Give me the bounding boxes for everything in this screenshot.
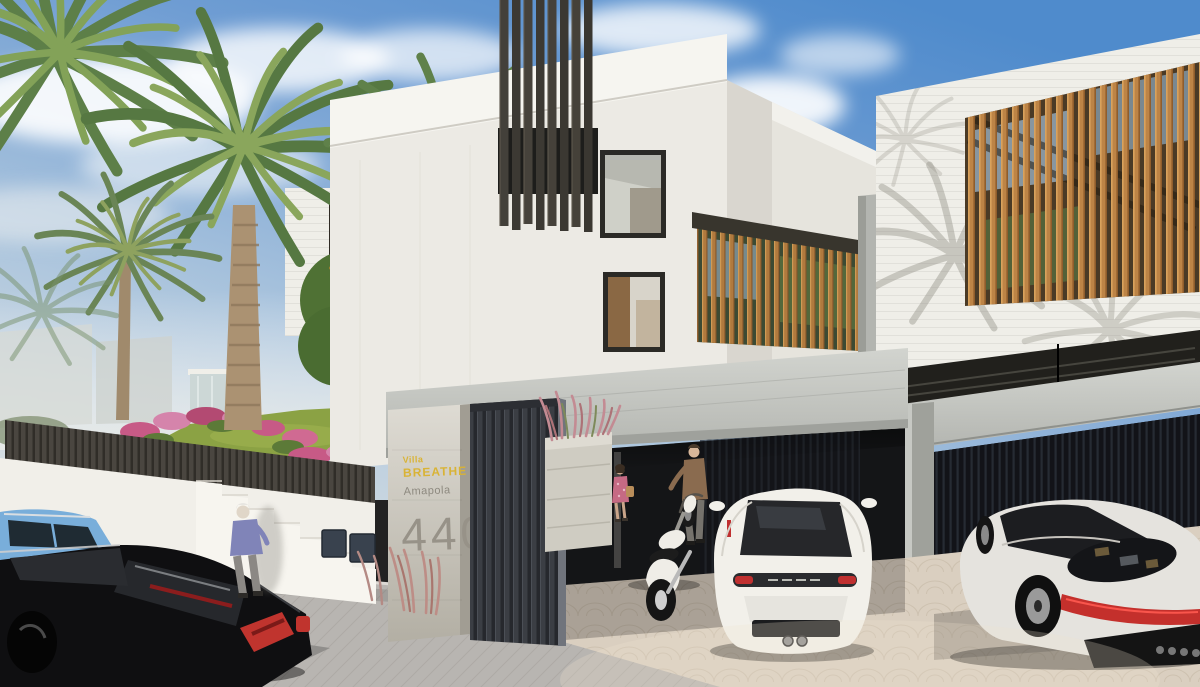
sign-street-name: Amapola — [403, 484, 451, 498]
right-mirror — [861, 498, 877, 508]
sign-brand-line2: BREATHE — [403, 464, 468, 480]
sign-brand-line1: Villa — [402, 454, 424, 465]
left-mirror — [709, 501, 725, 511]
mid-window — [603, 272, 665, 352]
black-car-taillight-right — [296, 616, 310, 632]
villa-street-render: Villa BREATHE Amapola 440 — [0, 0, 1200, 687]
upper-window — [600, 150, 666, 238]
shoulder-bag — [626, 486, 634, 497]
render-canvas: Villa BREATHE Amapola 440 — [0, 0, 1200, 687]
entry-planter — [545, 432, 612, 552]
